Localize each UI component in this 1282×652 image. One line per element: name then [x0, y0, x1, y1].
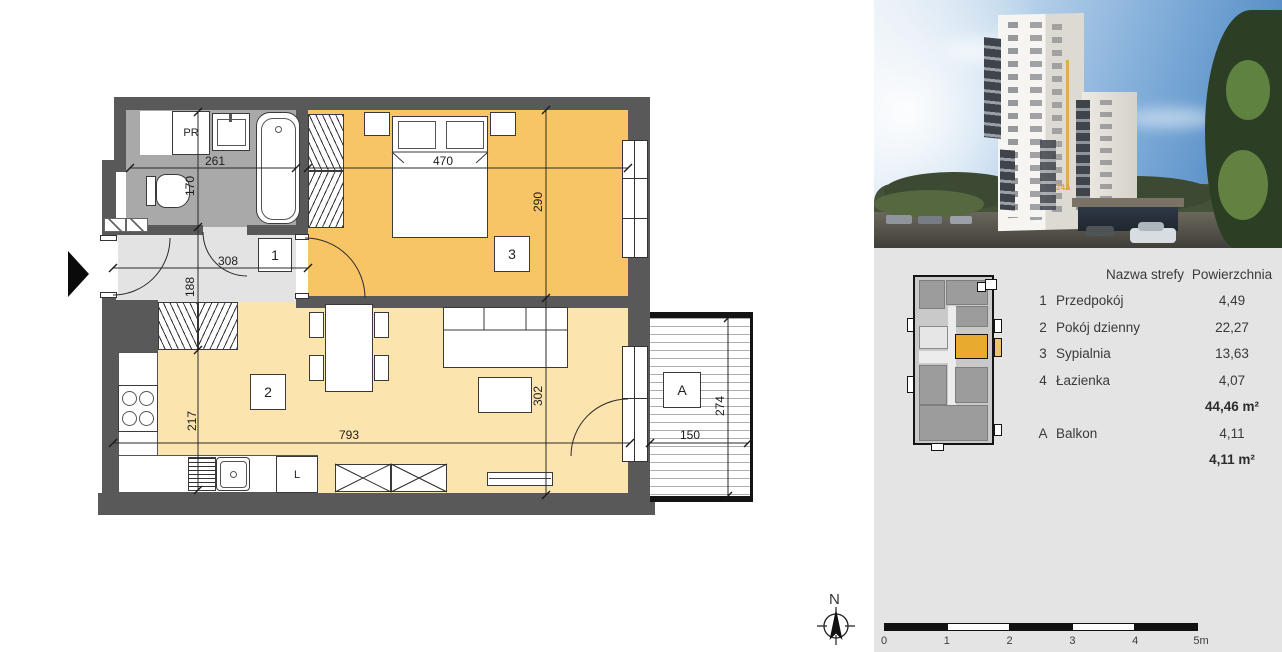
scale-seg-1: [884, 623, 947, 631]
wall-left-upper: [114, 97, 126, 167]
scale-seg-5: [1135, 623, 1198, 631]
locator-balcony-right-1: [994, 319, 1002, 333]
legend-row-3-name: Sypialnia: [1056, 346, 1184, 361]
legend-row-2-num: 2: [1030, 320, 1056, 335]
apartment-total-area: 44,46 m²: [1184, 399, 1280, 414]
legend-total-apartment-row: 44,46 m²: [1030, 394, 1282, 421]
stove-burner-4: [139, 411, 154, 426]
building-sign: 24A: [1056, 183, 1071, 192]
legend-row-balcony: A Balkon 4,11: [1030, 420, 1282, 447]
photo-car-white-roof: [1138, 222, 1164, 231]
chair-top-right: [374, 312, 389, 338]
legend-row-4-area: 4,07: [1184, 373, 1280, 388]
room-label-bedroom: 3: [494, 236, 530, 272]
wall-top: [126, 97, 650, 110]
locator-balcony-highlight: [994, 338, 1002, 357]
scale-label-1: 1: [944, 635, 950, 647]
photo-balconies-left-lower: [1000, 149, 1015, 210]
locator-balcony-left-1: [907, 318, 914, 332]
entrance-opening: [100, 238, 118, 295]
shaft-symbol-2: [126, 218, 148, 232]
scale-label-5: 5m: [1193, 635, 1208, 647]
scale-seg-4: [1072, 623, 1135, 631]
photo-canopy: [1072, 198, 1184, 207]
photo-car-dark: [1086, 226, 1114, 236]
bed-pillow-left: [398, 121, 436, 149]
entrance-jamb-top: [100, 235, 117, 241]
locator-unit-6: [919, 405, 988, 441]
bathtub-inner: [261, 118, 296, 220]
legend-row-3-area: 13,63: [1184, 346, 1280, 361]
washbasin-tap: [229, 114, 232, 122]
sofa: [443, 307, 568, 368]
room-label-living: 2: [250, 374, 286, 410]
balcony-window-mullion: [634, 347, 635, 461]
bedroom-window-divider2: [623, 218, 647, 219]
legend-row-2-name: Pokój dzienny: [1056, 320, 1184, 335]
photo-cloud-2: [1126, 108, 1216, 128]
scale-label-4: 4: [1132, 635, 1138, 647]
legend-header-name: Nazwa strefy: [1056, 267, 1184, 282]
scale-seg-3: [1010, 623, 1073, 631]
wall-bath-hall-right: [247, 225, 300, 235]
locator-unit-1: [919, 280, 945, 309]
dim-bedroom-depth: 290: [531, 192, 545, 212]
dim-kitchen-depth: 217: [185, 411, 199, 431]
stove-burner-2: [139, 391, 154, 406]
legend-row-balcony-area: 4,11: [1184, 426, 1280, 441]
photo-balconies-wing: [1076, 100, 1090, 210]
scale-bar: 0 1 2 3 4 5m: [884, 623, 1200, 649]
scale-bar-segments: [884, 623, 1198, 631]
closet-pr-label: PR: [183, 127, 198, 139]
nightstand-left: [364, 112, 390, 136]
photo-car-far-1: [886, 215, 912, 224]
dim-living-depth: 302: [531, 386, 545, 406]
legend-row-balcony-name: Balkon: [1056, 426, 1184, 441]
chair-bottom-left: [309, 355, 324, 381]
room-label-bedroom-text: 3: [508, 246, 516, 262]
coffee-table: [478, 377, 532, 413]
locator-unit-4: [919, 365, 947, 405]
dim-bedroom-width: 470: [433, 154, 453, 168]
wall-bottom: [98, 493, 655, 515]
bedroom-jamb-bottom: [295, 293, 309, 299]
storage-xbox-2: [391, 464, 447, 492]
balcony-total-area: 4,11 m²: [1184, 452, 1280, 467]
photo-car-far-2: [918, 216, 942, 224]
photo-tower-accent: [1066, 60, 1069, 190]
locator-unit-3: [955, 306, 988, 327]
scale-seg-2: [947, 623, 1010, 631]
hall-wardrobe-right: [198, 302, 238, 350]
balcony-door-window: [622, 346, 648, 462]
chair-top-left: [309, 312, 324, 338]
locator-balcony-bottom: [931, 443, 944, 451]
room-label-balcony: A: [663, 372, 701, 408]
dim-bath-width: 261: [205, 154, 225, 168]
bedroom-window-mullion: [634, 141, 635, 257]
dim-hall-depth: 188: [183, 277, 197, 297]
locator-building-outline: [913, 275, 994, 445]
radiator-line: [489, 478, 551, 479]
dishwasher: [188, 457, 216, 491]
stove-burner-3: [122, 411, 137, 426]
bedroom-wardrobe-top: [308, 114, 344, 171]
legend-row-2-area: 22,27: [1184, 320, 1280, 335]
photo-right-tree-light1: [1226, 60, 1270, 120]
photo-balconies-mid: [1040, 140, 1056, 210]
radiator: [487, 472, 553, 486]
room-label-hall: 1: [258, 238, 292, 272]
floorplan: 230: [0, 0, 874, 652]
wall-hall-block: [114, 300, 158, 352]
stove-burner-1: [122, 391, 137, 406]
legend-row-4: 4 Łazienka 4,07: [1030, 367, 1282, 394]
legend-row-2: 2 Pokój dzienny 22,27: [1030, 314, 1282, 341]
legend-row-4-name: Łazienka: [1056, 373, 1184, 388]
shaft-symbol-1: [104, 218, 126, 232]
locator-unit-white: [919, 326, 948, 349]
legend-row-3: 3 Sypialnia 13,63: [1030, 341, 1282, 368]
dim-bath-depth: 170: [183, 176, 197, 196]
dim-hall-width: 308: [218, 254, 238, 268]
photo-wing-windows: [1100, 100, 1112, 208]
room-label-balcony-text: A: [677, 382, 686, 398]
legend-header-area: Powierzchnia: [1184, 267, 1280, 282]
dim-balcony-width: 150: [680, 428, 700, 442]
photo-right-tree-light2: [1218, 150, 1268, 220]
fridge-label: L: [294, 469, 300, 481]
legend-header: Nazwa strefy Powierzchnia: [1030, 261, 1282, 288]
entrance-jamb-bottom: [100, 292, 117, 298]
bedroom-door-opening: [296, 238, 308, 296]
dim-balcony-depth: 274: [713, 396, 727, 416]
floorplan-page: 230: [0, 0, 1282, 652]
bed-pillow-right: [446, 121, 484, 149]
locator-balcony-right-2: [994, 424, 1002, 436]
storage-xbox-1: [335, 464, 391, 492]
compass-north-label: N: [829, 591, 840, 608]
photo-car-far-3: [950, 216, 972, 224]
toilet-tank: [146, 176, 156, 206]
locator-balcony-top: [985, 279, 997, 290]
legend-row-balcony-num: A: [1030, 426, 1056, 441]
kitchen-sink-drain: [230, 471, 237, 478]
legend-row-1-area: 4,49: [1184, 293, 1280, 308]
nightstand-right: [490, 112, 516, 136]
legend-total-balcony-row: 4,11 m²: [1030, 447, 1282, 474]
bathtub-drain: [275, 126, 282, 133]
bedroom-window-divider1: [623, 178, 647, 179]
balcony-window-divider: [623, 398, 647, 399]
legend-row-1-name: Przedpokój: [1056, 293, 1184, 308]
bathroom-niche: [140, 111, 172, 155]
legend-row-4-num: 4: [1030, 373, 1056, 388]
floor-locator: [907, 272, 1004, 454]
legend-row-1-num: 1: [1030, 293, 1056, 308]
locator-unit-5: [955, 367, 988, 403]
scale-label-3: 3: [1069, 635, 1075, 647]
dining-table: [325, 304, 373, 392]
scale-label-0: 0: [881, 635, 887, 647]
room-label-hall-text: 1: [271, 247, 279, 263]
photo-bush-left: [874, 190, 984, 218]
bedroom-wardrobe-bottom: [308, 171, 344, 228]
hall-wardrobe-left: [158, 302, 198, 350]
locator-unit-highlight: [955, 334, 988, 359]
area-legend: Nazwa strefy Powierzchnia 1 Przedpokój 4…: [1030, 261, 1282, 473]
legend-row-3-num: 3: [1030, 346, 1056, 361]
dim-living-width: 793: [339, 428, 359, 442]
fridge: L: [276, 456, 318, 493]
building-photo: 24A: [874, 0, 1282, 248]
washbasin-bowl: [217, 119, 246, 146]
room-label-living-text: 2: [264, 384, 272, 400]
chair-bottom-right: [374, 355, 389, 381]
locator-balcony-left-2: [907, 376, 914, 393]
legend-row-1: 1 Przedpokój 4,49: [1030, 288, 1282, 315]
closet-pr: PR: [172, 111, 210, 155]
scale-label-2: 2: [1007, 635, 1013, 647]
photo-balconies-left: [984, 37, 1001, 139]
bedroom-jamb-top: [295, 234, 309, 240]
locator-corridor-h: [919, 351, 949, 363]
bedroom-window: [622, 140, 648, 258]
